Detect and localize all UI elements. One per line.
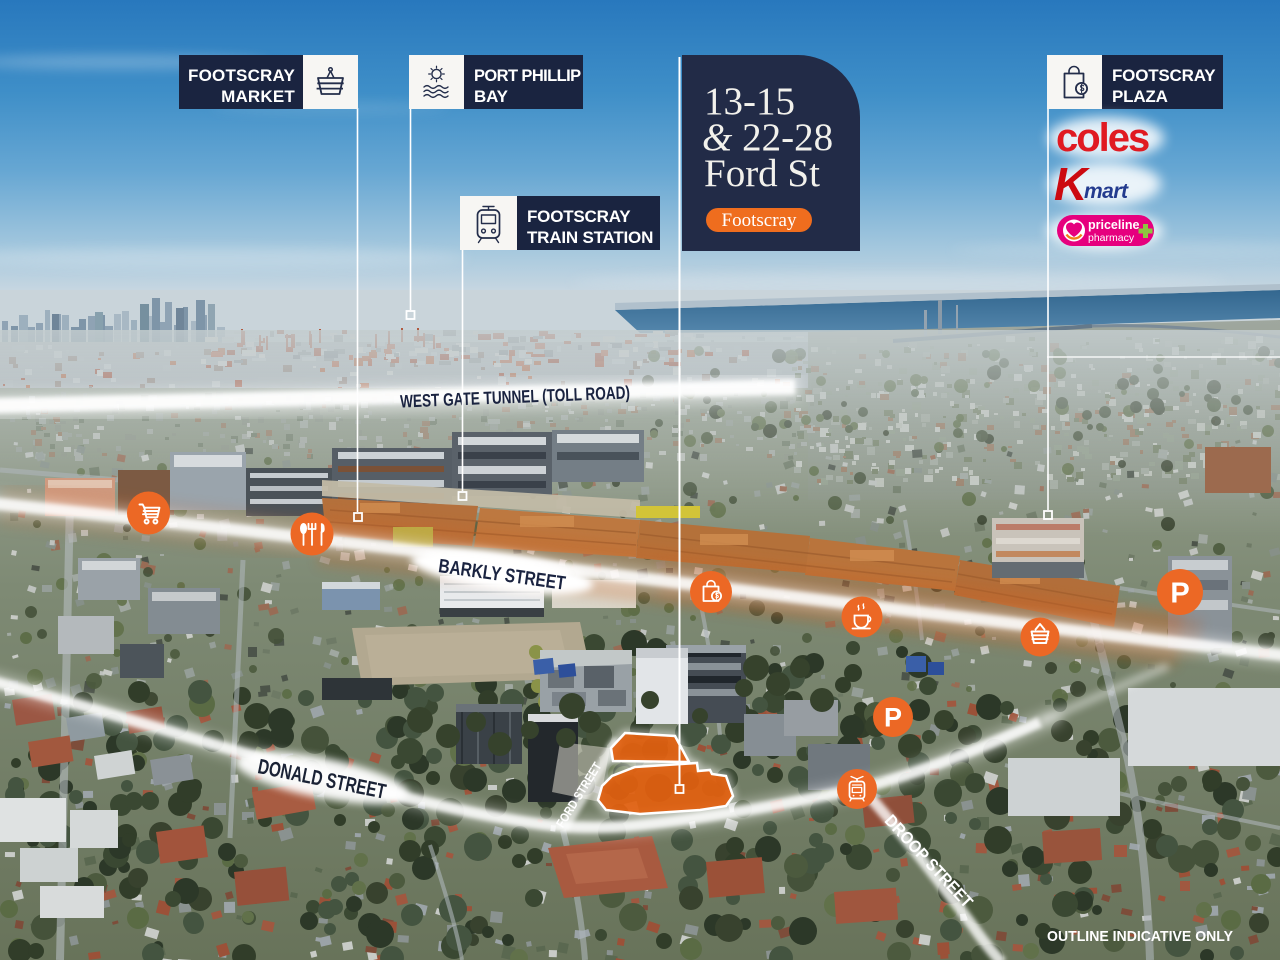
svg-text:PORT PHILLIP: PORT PHILLIP [474, 67, 581, 85]
svg-text:priceline: priceline [1088, 218, 1139, 232]
svg-text:Ford St: Ford St [704, 152, 820, 195]
svg-text:pharmacy: pharmacy [1088, 232, 1135, 244]
svg-text:MARKET: MARKET [221, 87, 295, 106]
svg-text:TRAIN STATION: TRAIN STATION [527, 228, 653, 247]
svg-text:Footscray: Footscray [722, 210, 797, 231]
svg-text:FOOTSCRAY: FOOTSCRAY [527, 207, 631, 226]
svg-text:P: P [1170, 578, 1189, 610]
svg-text:P: P [884, 703, 902, 733]
svg-text:coles: coles [1056, 116, 1149, 160]
svg-text:mart: mart [1084, 180, 1129, 203]
svg-text:PLAZA: PLAZA [1112, 87, 1168, 106]
svg-text:FOOTSCRAY: FOOTSCRAY [1112, 66, 1216, 85]
svg-text:FOOTSCRAY: FOOTSCRAY [188, 66, 295, 85]
svg-text:OUTLINE INDICATIVE ONLY: OUTLINE INDICATIVE ONLY [1047, 928, 1233, 945]
svg-text:BAY: BAY [474, 87, 509, 106]
